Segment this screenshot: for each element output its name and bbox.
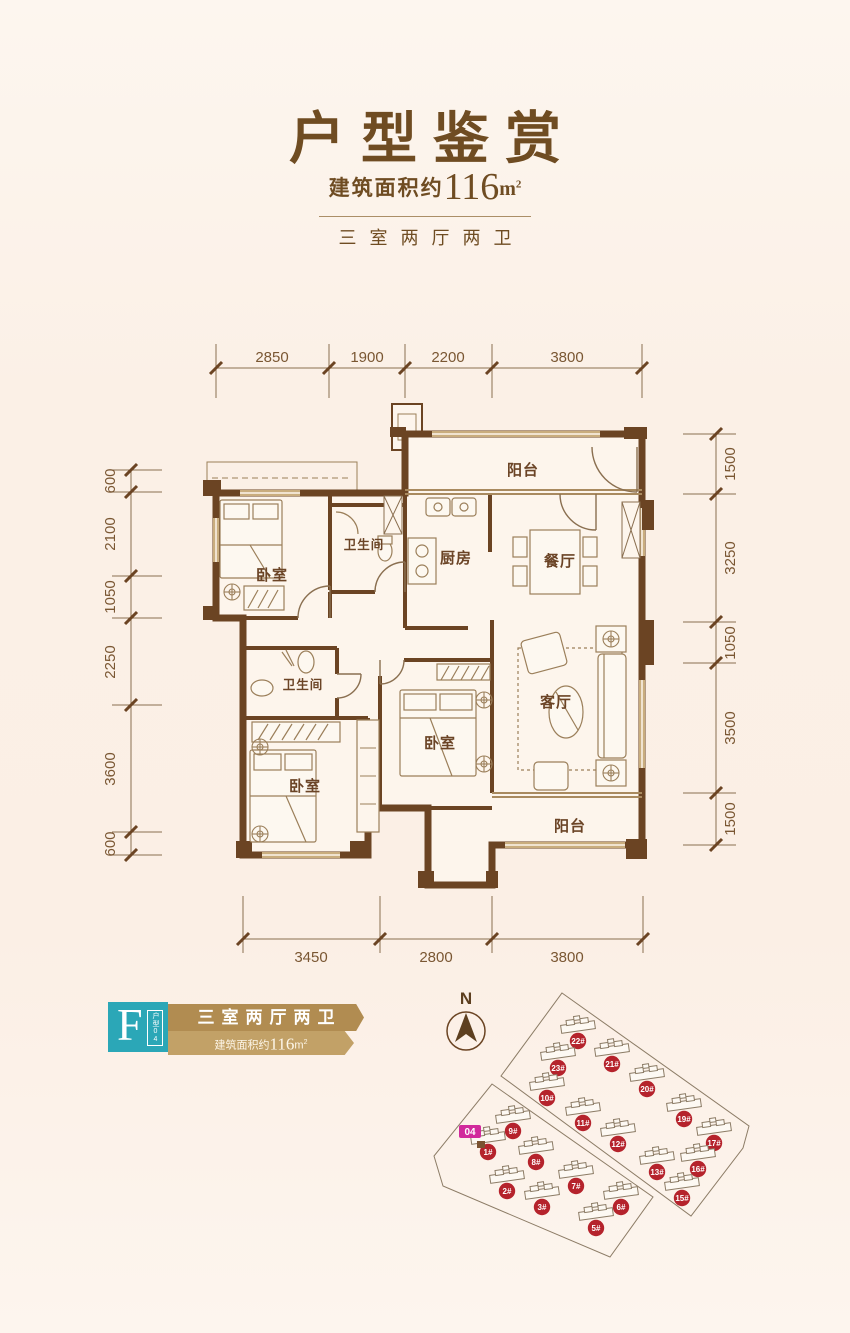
svg-text:19#: 19#: [677, 1115, 691, 1124]
dim-top-1: 2850: [255, 349, 288, 366]
room-label-bedroom-middle: 卧室: [424, 734, 456, 752]
svg-text:16#: 16#: [691, 1165, 705, 1174]
dim-right-4: 3500: [722, 711, 739, 744]
room-label-bathroom-middle: 卫生间: [283, 677, 324, 692]
svg-text:13#: 13#: [650, 1168, 664, 1177]
unit-letter: F: [117, 998, 143, 1051]
dim-bottom-2: 2800: [419, 949, 452, 966]
unit-area-banner: 建筑面积约116m2: [168, 1031, 354, 1055]
dim-top-4: 3800: [550, 349, 583, 366]
building-22: 22#: [560, 1014, 596, 1049]
svg-text:11#: 11#: [577, 1119, 590, 1128]
building-23: 23#: [540, 1041, 576, 1076]
svg-text:5#: 5#: [592, 1224, 601, 1233]
dim-left-3: 1050: [102, 580, 119, 613]
building-5: 5#: [578, 1201, 614, 1236]
building-17: 17#: [696, 1116, 732, 1151]
floorplan-canvas: 2850 1900 2200 3800 3450 2800 3800 600 2…: [0, 0, 850, 1333]
svg-text:12#: 12#: [611, 1140, 625, 1149]
svg-text:15#: 15#: [675, 1194, 689, 1203]
building-8: 8#: [518, 1135, 554, 1170]
svg-text:2#: 2#: [503, 1187, 512, 1196]
building-13: 13#: [639, 1145, 675, 1180]
dim-top-3: 2200: [431, 349, 464, 366]
building-21: 21#: [594, 1037, 630, 1072]
north-label: N: [460, 989, 472, 1008]
svg-text:1#: 1#: [484, 1148, 493, 1157]
siteplan-buildings: 22#23#21#20#10#11#19#12#17#13#16#15#9#1#…: [470, 1014, 732, 1236]
page: 户型鉴赏 建筑面积约116m2 三室两厅两卫: [0, 0, 850, 1333]
building-11: 11#: [565, 1096, 601, 1131]
svg-text:22#: 22#: [571, 1037, 585, 1046]
svg-text:17#: 17#: [707, 1139, 721, 1148]
dim-right-5: 1500: [722, 802, 739, 835]
dim-left-2: 2100: [102, 517, 119, 550]
unit-badge: F 户型04 三室两厅两卫 建筑面积约116m2: [108, 1002, 398, 1058]
building-7: 7#: [558, 1159, 594, 1194]
svg-text:3#: 3#: [538, 1203, 547, 1212]
dim-bottom-3: 3800: [550, 949, 583, 966]
svg-text:8#: 8#: [532, 1158, 541, 1167]
dim-right-3: 1050: [722, 626, 739, 659]
building-20: 20#: [629, 1062, 665, 1097]
dim-right-1: 1500: [722, 447, 739, 480]
svg-text:20#: 20#: [640, 1085, 654, 1094]
building-12: 12#: [600, 1117, 636, 1152]
room-label-dining: 餐厅: [544, 552, 576, 570]
building-3: 3#: [524, 1180, 560, 1215]
svg-text:9#: 9#: [509, 1127, 518, 1136]
dim-bottom-1: 3450: [294, 949, 327, 966]
svg-text:23#: 23#: [551, 1064, 565, 1073]
svg-text:10#: 10#: [540, 1094, 554, 1103]
dim-right-2: 3250: [722, 541, 739, 574]
unit-layout-banner: 三室两厅两卫: [168, 1004, 364, 1031]
unit-letter-block: F 户型04: [108, 1002, 168, 1052]
parcel-outline-2: [434, 1084, 653, 1257]
room-label-bedroom-top-left: 卧室: [256, 566, 288, 584]
unit-highlight-label: 04: [464, 1127, 476, 1138]
north-arrow: N: [447, 989, 485, 1050]
dim-left-6: 600: [102, 831, 119, 856]
dim-left-1: 600: [102, 468, 119, 493]
dim-left-5: 3600: [102, 752, 119, 785]
room-label-living: 客厅: [539, 693, 572, 711]
svg-text:6#: 6#: [617, 1203, 626, 1212]
dim-left-4: 2250: [102, 645, 119, 678]
building-19: 19#: [666, 1092, 702, 1127]
svg-text:7#: 7#: [572, 1182, 581, 1191]
dim-top-2: 1900: [350, 349, 383, 366]
room-label-balcony-bottom: 阳台: [554, 817, 586, 835]
room-label-kitchen: 厨房: [440, 549, 472, 567]
room-label-balcony-top: 阳台: [507, 461, 539, 479]
room-label-bedroom-bottom-left: 卧室: [289, 777, 321, 795]
room-label-bathroom-top: 卫生间: [344, 537, 385, 552]
building-2: 2#: [489, 1164, 525, 1199]
unit-tag: 户型04: [147, 1010, 163, 1046]
svg-text:21#: 21#: [605, 1060, 619, 1069]
